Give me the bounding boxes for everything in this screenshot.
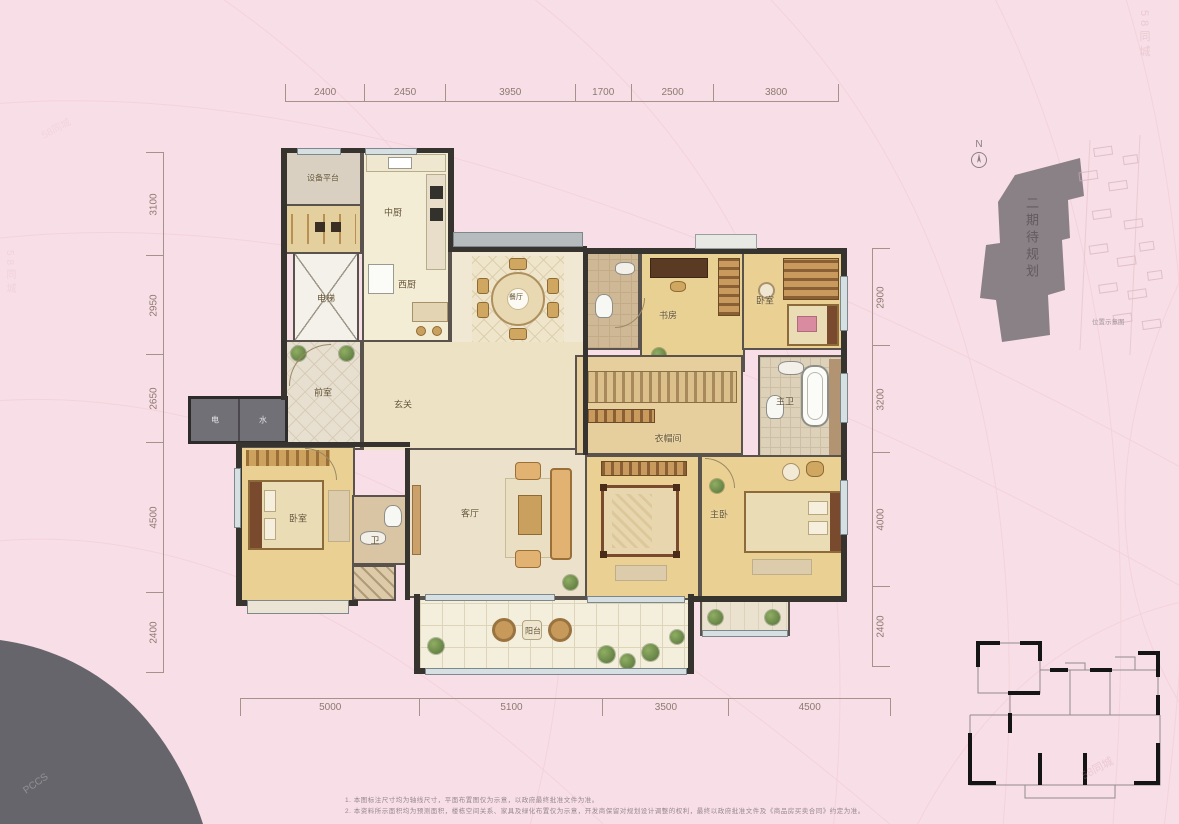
note-line-1: 1. 本图标注尺寸均为轴线尺寸，平面布置图仅为示意，以政府最终批准文件为准。 (345, 794, 599, 804)
compass-icon (970, 151, 988, 169)
wall (690, 596, 847, 602)
plant-icon (598, 646, 615, 663)
armchair-icon (515, 550, 541, 568)
bed-furniture (601, 485, 679, 557)
window (587, 596, 685, 603)
window (840, 480, 848, 535)
dimension-segment: 2900 (873, 249, 890, 346)
stool-icon (416, 326, 426, 336)
wall (405, 448, 410, 600)
bay-window (247, 600, 349, 614)
bed-furniture (248, 480, 324, 550)
dimension-segment: 2450 (365, 84, 446, 101)
island-counter (412, 302, 448, 322)
chair-icon (477, 278, 489, 294)
site-plan-caption: 位置示意图 (1092, 316, 1125, 326)
room-label-equipment-platform: 设备平台 (307, 173, 339, 184)
rug-furniture (615, 565, 667, 581)
bookshelf-furniture (718, 258, 740, 316)
room-pantry (285, 204, 362, 254)
bathtub-icon (801, 365, 829, 427)
room-label-foyer: 玄关 (394, 398, 412, 411)
armchair-icon (515, 462, 541, 480)
window (425, 594, 555, 601)
key-plan (950, 615, 1175, 805)
dimension-chain-right: 2900320040002400 (872, 248, 890, 667)
room-label-meter-water: 水 (259, 415, 267, 426)
stove-icon (315, 222, 325, 232)
toilet-icon (384, 505, 402, 527)
fridge-icon (368, 264, 394, 294)
floorplan-page: PCCS 58同城 58同城 58同城 58同城 240024503950170… (0, 0, 1179, 824)
oven-icon (430, 208, 443, 221)
window (234, 468, 241, 528)
room-label-living: 客厅 (461, 507, 479, 520)
dimension-segment: 2500 (632, 84, 714, 101)
corner-decoration: PCCS (0, 598, 260, 824)
window (365, 148, 417, 155)
room-study (640, 252, 745, 372)
plant-icon (670, 630, 684, 644)
room-label-kitchen: 中厨 (384, 206, 402, 219)
dimension-segment: 2400 (873, 587, 890, 667)
wall (236, 442, 410, 447)
room-label-meter-electric: 电 (211, 415, 219, 426)
chair-icon (477, 302, 489, 318)
sofa-furniture (550, 468, 572, 560)
shower-area (352, 565, 396, 601)
dimension-segment: 4500 (146, 443, 163, 593)
cloakroom-runner (585, 371, 737, 403)
room-label-west-kitchen: 西厨 (398, 278, 416, 291)
pouf-icon (492, 618, 516, 642)
tv-cabinet (412, 485, 421, 555)
plant-icon (620, 654, 635, 669)
room-label-bedroom-left: 卧室 (289, 512, 307, 525)
window (702, 630, 788, 637)
toilet-icon (595, 294, 613, 318)
dimension-chain-left: 31002950265045002400 (146, 152, 164, 673)
dimension-segment: 2400 (286, 84, 365, 101)
sink-icon (615, 262, 635, 275)
rug-furniture (328, 490, 350, 542)
sink-icon (388, 157, 412, 169)
north-indicator: N (966, 140, 992, 169)
dimension-segment: 3500 (603, 699, 729, 716)
room-label-cloakroom: 衣帽间 (654, 432, 681, 445)
room-label-elevator: 电梯 (317, 292, 335, 305)
ac-platform (453, 232, 583, 247)
window (425, 668, 687, 675)
dimension-segment: 1700 (576, 84, 632, 101)
plant-icon (563, 575, 578, 590)
chair-icon (670, 281, 686, 292)
dimension-chain-top: 240024503950170025003800 (285, 84, 839, 102)
room-balcony (418, 598, 692, 672)
dimension-segment: 3950 (446, 84, 576, 101)
room-bedroom-mid (585, 455, 700, 600)
bed-furniture (787, 304, 839, 346)
room-living (408, 448, 588, 598)
room-label-master-bath: 主卫 (776, 395, 794, 408)
plant-icon (339, 346, 354, 361)
dimension-segment: 4000 (873, 453, 890, 586)
room-label-lobby: 前室 (314, 386, 332, 399)
site-plan-phase-label: 二期待规划 (1022, 196, 1041, 281)
window (297, 148, 341, 155)
chair-icon (509, 328, 527, 340)
room-label-bath-small: 卫 (370, 534, 379, 547)
chair-icon (547, 302, 559, 318)
ac-platform (695, 234, 757, 249)
wardrobe-furniture (783, 258, 839, 300)
room-label-bedroom-top: 卧室 (756, 294, 774, 307)
rug-furniture (752, 559, 812, 575)
room-label-master-bedroom: 主卧 (710, 508, 728, 521)
chair-icon (806, 461, 824, 477)
dimension-segment: 2650 (146, 355, 163, 443)
wardrobe-furniture (585, 409, 655, 423)
dimension-chain-bottom: 5000510035004500 (240, 698, 891, 716)
dimension-segment: 3100 (146, 153, 163, 256)
dimension-segment: 5000 (241, 699, 420, 716)
wardrobe-furniture (601, 461, 687, 476)
chair-icon (509, 258, 527, 270)
dimension-segment: 4500 (729, 699, 891, 716)
room-label-dining: 餐厅 (509, 292, 523, 302)
room-label-balcony: 阳台 (525, 626, 541, 637)
wall (583, 250, 588, 455)
dimension-segment: 3200 (873, 346, 890, 453)
floor-plan: 设备平台 中厨 西厨 电梯 前室 电 水 玄关 餐厅 客厅 阳台 卧室 卫 书房… (185, 148, 849, 680)
room-meters (188, 396, 288, 444)
wall (688, 594, 694, 674)
note-line-2: 2. 本资料所示面积均为预测面积，楼栋空间关系、家具及绿化布置仅为示意，开发商保… (345, 805, 865, 815)
room-bedroom-left (240, 446, 355, 604)
dimension-segment: 2950 (146, 256, 163, 354)
room-label-study: 书房 (659, 309, 677, 322)
dimension-segment: 3800 (714, 84, 839, 101)
wall (414, 594, 420, 674)
room-hallway (362, 342, 585, 450)
room-kitchen (362, 150, 450, 342)
stove-icon (331, 222, 341, 232)
dimension-segment: 5100 (420, 699, 603, 716)
table-icon (782, 463, 800, 481)
plant-icon (428, 638, 444, 654)
coffee-table (518, 495, 542, 535)
window (840, 276, 848, 331)
chair-icon (547, 278, 559, 294)
plant-icon (765, 610, 780, 625)
sink-icon (778, 361, 804, 375)
room-master-bath (758, 355, 847, 460)
bed-furniture (744, 491, 844, 553)
wall (281, 148, 287, 400)
oven-icon (430, 186, 443, 199)
north-label: N (966, 140, 992, 150)
plant-icon (642, 644, 659, 661)
pouf-icon (548, 618, 572, 642)
stool-icon (432, 326, 442, 336)
room-bath-small (352, 495, 410, 565)
desk-furniture (650, 258, 708, 278)
window (840, 373, 848, 423)
plant-icon (708, 610, 723, 625)
